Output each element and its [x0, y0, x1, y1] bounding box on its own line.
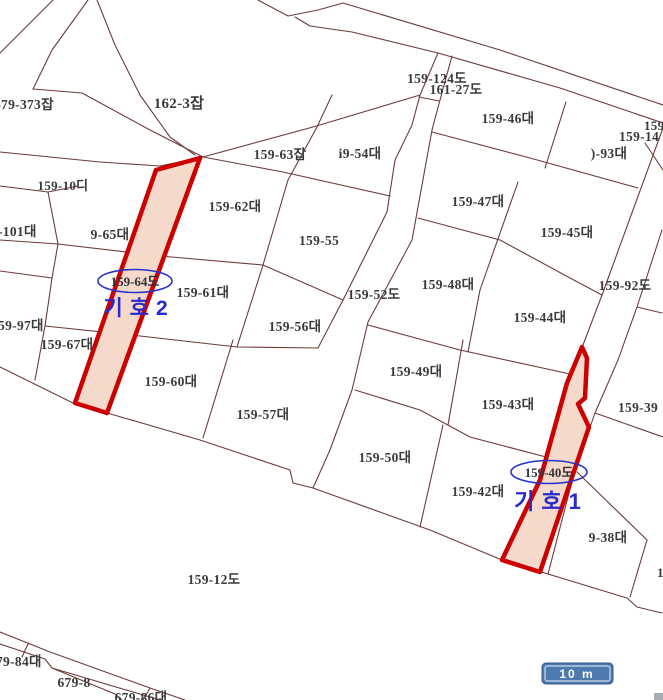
parcel-label-159-61: 159-61대 — [177, 285, 230, 300]
parcel-label-159-60: 159-60대 — [145, 374, 198, 389]
parcel-label-159-65: 9-65대 — [91, 227, 130, 242]
parcel-label-159-50: 159-50대 — [359, 450, 412, 465]
parcel-label-159-47: 159-47대 — [452, 194, 505, 209]
parcel-label-159-44: 159-44대 — [514, 310, 567, 325]
parcel-label-159-45: 159-45대 — [541, 225, 594, 240]
parcel-label-159-10: 159-10디 — [38, 178, 89, 193]
parcel-label-159-43: 159-43대 — [482, 397, 535, 412]
parcel-label-159-56: 159-56대 — [269, 319, 322, 334]
parcel-label-79-84: 79-84대 — [0, 654, 42, 669]
parcel-label-159-63: 159-63잡 — [254, 146, 307, 162]
parcel-label-159-48: 159-48대 — [422, 277, 475, 292]
scale-bar-label: 10 m — [559, 667, 594, 681]
parcel-label-159-52: 159-52도 — [348, 287, 401, 302]
parcel-label-679-373: 679-373잡 — [0, 96, 54, 112]
marker-label-giho1: 기호1 — [514, 489, 588, 514]
parcel-label-159-39-clipped: 159-39 — [618, 400, 658, 415]
corner-chip — [654, 693, 663, 700]
parcel-label-159-97: 159-97대 — [0, 318, 44, 333]
parcel-label-162-3: 162-3잡 — [154, 94, 205, 112]
parcel-label-161-27: 161-27도 — [430, 82, 483, 97]
parcel-label-101: -101대 — [0, 224, 37, 239]
parcel-label-159-93: )-93대 — [591, 146, 627, 161]
parcel-label-159-38: 9-38대 — [589, 530, 628, 545]
parcel-label-679-8: 679-8 — [58, 675, 91, 690]
parcel-label-159-55: 159-55 — [299, 233, 339, 248]
parcel-label-159-67: 159-67대 — [41, 337, 94, 352]
parcel-label-right-edge-partial: 1 — [657, 565, 663, 580]
parcel-label-159-42: 159-42대 — [452, 484, 505, 499]
parcel-label-159-14-clipped: 159-14 — [619, 129, 659, 144]
parcel-label-679-86-clipped: 679-86대 — [115, 690, 168, 700]
parcel-label-159-57: 159-57대 — [237, 407, 290, 422]
ellipse-label-159-64: 159-64도 — [111, 274, 160, 289]
scale-bar: 10 m — [542, 663, 613, 684]
ellipse-label-159-40: 159-40도 — [525, 465, 574, 480]
parcel-label-159-12: 159-12도 — [188, 572, 241, 587]
parcel-label-159-46: 159-46대 — [482, 111, 535, 126]
cadastral-map-svg: 679-373잡 162-3잡 159-124도 161-27도 159-46대… — [0, 0, 663, 700]
cadastral-map: 679-373잡 162-3잡 159-124도 161-27도 159-46대… — [0, 0, 663, 700]
parcel-label-159-49: 159-49대 — [390, 364, 443, 379]
parcel-label-159-62: 159-62대 — [209, 199, 262, 214]
parcel-label-159-92: 159-92도 — [599, 278, 652, 293]
marker-label-giho2: 기호2 — [103, 297, 174, 320]
parcel-label-159-54: i9-54대 — [339, 146, 382, 161]
